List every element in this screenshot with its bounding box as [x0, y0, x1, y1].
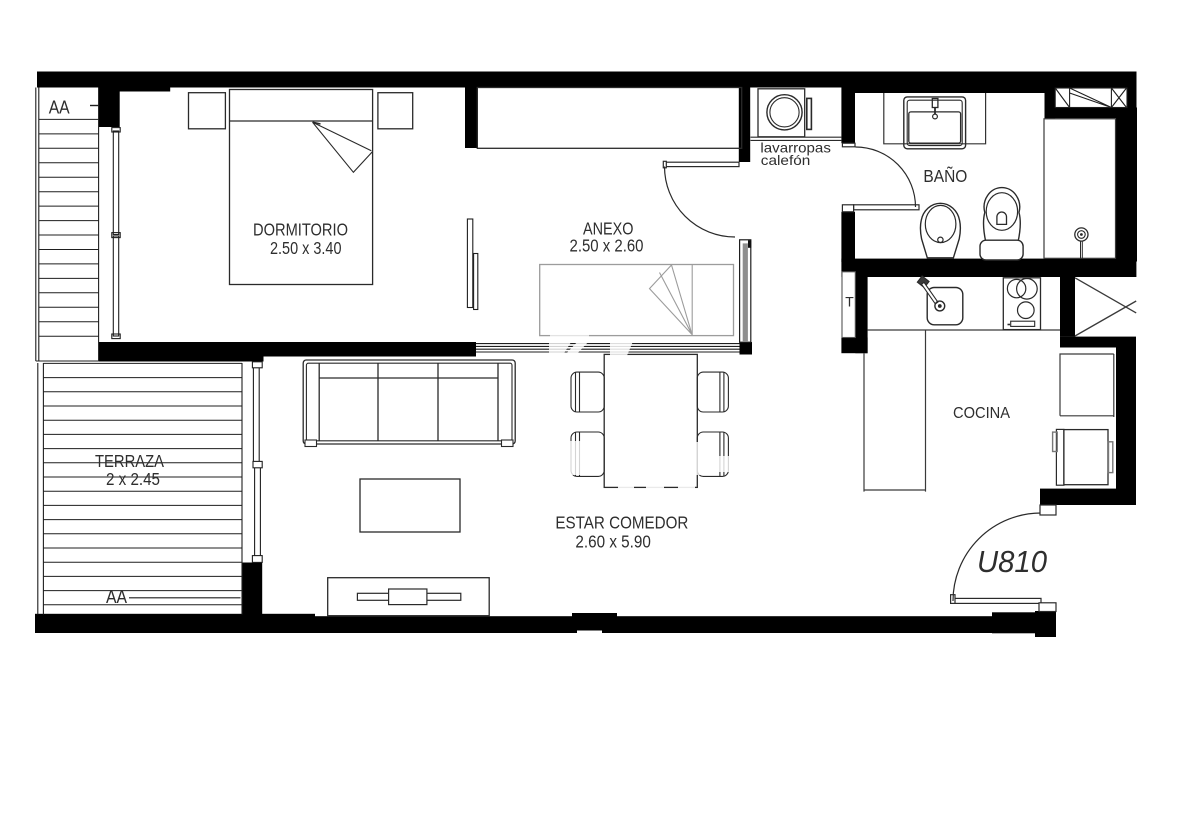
- svg-text:2.50 x 2.60: 2.50 x 2.60: [570, 236, 644, 256]
- svg-text:AA: AA: [106, 587, 127, 607]
- svg-text:ESTAR COMEDOR: ESTAR COMEDOR: [555, 513, 688, 533]
- svg-text:calefón: calefón: [761, 152, 811, 168]
- svg-text:T: T: [845, 294, 854, 310]
- svg-text:U810: U810: [977, 545, 1047, 579]
- svg-text:DORMITORIO: DORMITORIO: [253, 220, 348, 240]
- svg-text:2.50 x 3.40: 2.50 x 3.40: [270, 238, 342, 258]
- svg-text:2.60 x 5.90: 2.60 x 5.90: [575, 531, 651, 551]
- svg-text:BAÑO: BAÑO: [923, 165, 967, 186]
- svg-text:COCINA: COCINA: [953, 405, 1010, 422]
- svg-text:AA: AA: [49, 97, 70, 117]
- svg-text:TERRAZA: TERRAZA: [95, 451, 164, 471]
- svg-text:2 x 2.45: 2 x 2.45: [106, 469, 160, 489]
